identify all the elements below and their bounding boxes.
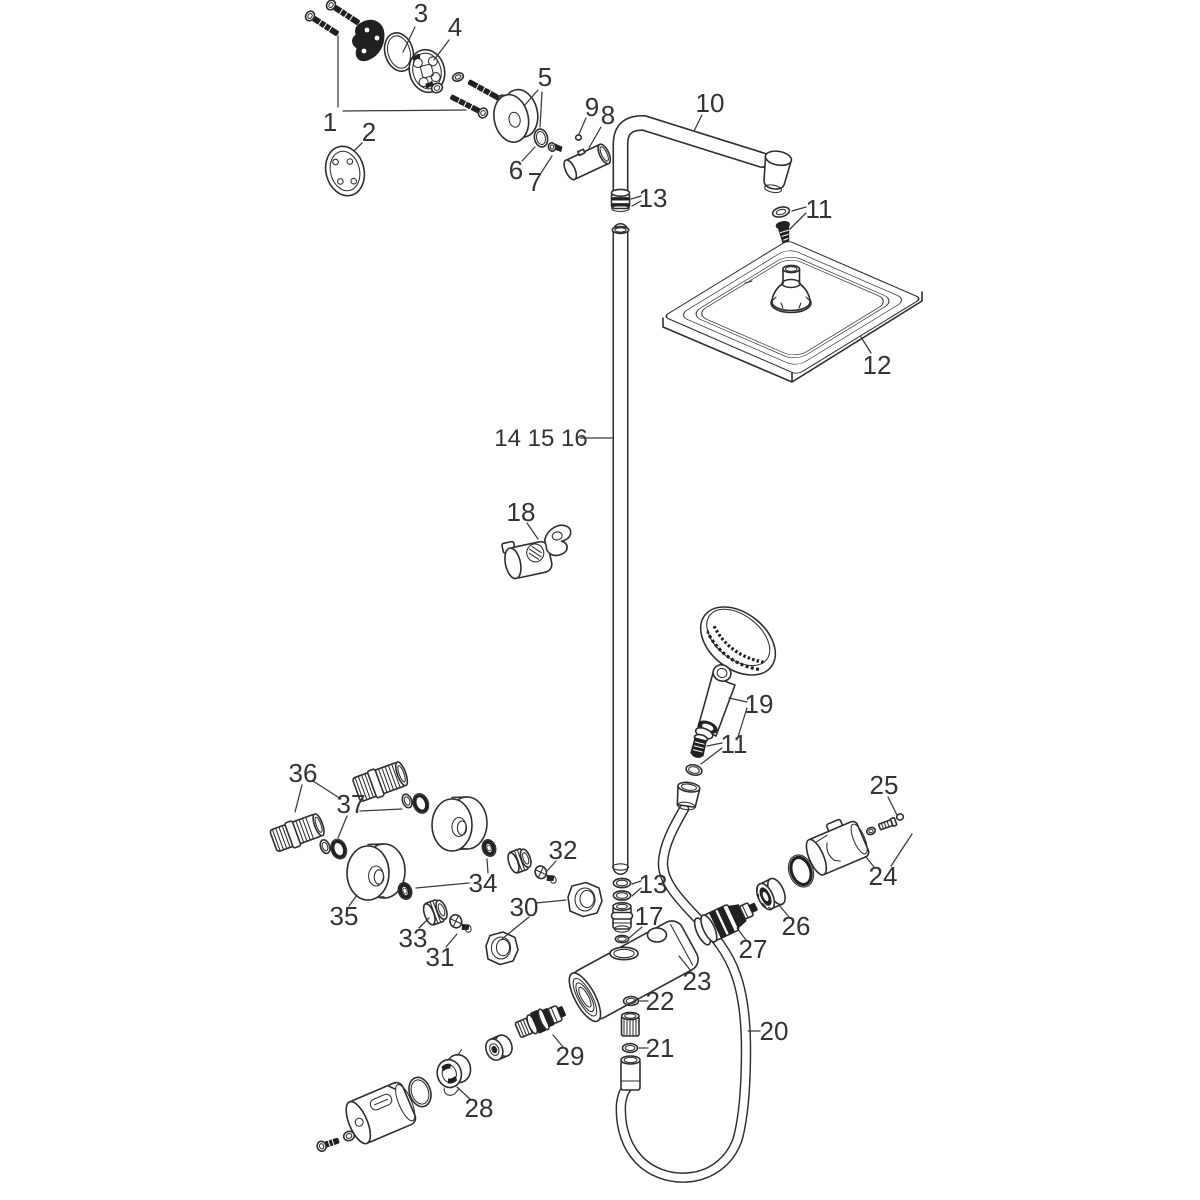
screw-7 xyxy=(547,142,562,152)
check-valve-31 xyxy=(448,911,472,937)
leader-line-30-0 xyxy=(536,900,566,903)
part-label-30: 30 xyxy=(510,892,539,922)
part-label-12: 12 xyxy=(863,350,892,380)
seal-set-37-lower xyxy=(318,833,349,864)
part-label-26: 26 xyxy=(782,911,811,941)
union-nut-30-upper xyxy=(568,883,602,917)
part-label-29: 29 xyxy=(556,1041,585,1071)
set-screw-9 xyxy=(576,135,582,140)
o-ring-6 xyxy=(533,128,549,148)
washer-34-lower xyxy=(396,881,414,901)
part-label-27: 27 xyxy=(739,934,768,964)
part-label-1: 1 xyxy=(323,107,337,137)
o-ring-21 xyxy=(623,1044,638,1053)
part-label-2: 2 xyxy=(362,117,376,147)
leader-line-6-0 xyxy=(522,147,535,161)
escutcheon-35 xyxy=(347,844,405,900)
leader-line-36-0 xyxy=(295,785,302,812)
part-label-8: 8 xyxy=(601,100,615,130)
part-label-37: 37 xyxy=(337,789,366,819)
adapter-32 xyxy=(506,846,534,874)
part-label-19: 19 xyxy=(745,689,774,719)
leader-line-34-1 xyxy=(416,883,469,888)
threaded-nipple xyxy=(622,1012,640,1036)
wall-sleeve-8 xyxy=(560,140,612,181)
cartridge-nut-26 xyxy=(753,876,789,912)
part-label-9: 9 xyxy=(585,92,599,122)
eccentric-connector-36-lower xyxy=(269,811,327,854)
leader-line-7-0 xyxy=(541,156,552,173)
leader-line-1-1 xyxy=(343,110,466,111)
part-label-33: 33 xyxy=(399,923,428,953)
seal-set-37-upper xyxy=(400,788,431,819)
part-label-20: 20 xyxy=(760,1016,789,1046)
exploded-parts-diagram: 3412567891011121314 15 16181911202524262… xyxy=(0,0,1200,1200)
washer-34-upper xyxy=(480,838,498,858)
part-label-21: 21 xyxy=(646,1033,675,1063)
part-labels: 3412567891011121314 15 16181911202524262… xyxy=(289,0,912,1123)
part-label-5: 5 xyxy=(538,62,552,92)
filter-11 xyxy=(690,733,708,759)
spindle-nut xyxy=(483,1032,516,1062)
slider-holder-18 xyxy=(500,523,578,580)
connector-17 xyxy=(612,903,633,933)
wall-seal-plate xyxy=(352,20,384,61)
part-label-35: 35 xyxy=(330,901,359,931)
part-label-31: 31 xyxy=(426,942,455,972)
escutcheon-34 xyxy=(432,797,487,851)
leader-line-37-0 xyxy=(338,816,347,838)
part-label-18: 18 xyxy=(507,497,536,527)
part-label-10: 10 xyxy=(696,88,725,118)
handle-screw-25 xyxy=(866,813,905,836)
handle-screw-bottom xyxy=(316,1130,356,1152)
o-rings-13-bottom xyxy=(613,878,630,900)
riser-pipe xyxy=(612,227,628,871)
part-label-24: 24 xyxy=(869,861,898,891)
part-label-7: 7 xyxy=(528,167,542,197)
o-ring-17 xyxy=(615,935,628,942)
leader-line-11-top-0 xyxy=(792,207,806,211)
leader-line-37-1 xyxy=(360,809,402,811)
pipe-nut-13-top xyxy=(612,189,630,211)
hand-shower-19 xyxy=(688,593,789,742)
valve-spindle-29 xyxy=(514,1001,569,1041)
leader-line-4-0 xyxy=(434,40,449,60)
o-ring-11 xyxy=(685,763,703,777)
part-label-23: 23 xyxy=(683,966,712,996)
part-label-11-mid: 11 xyxy=(721,729,748,759)
part-label-14-15-16: 14 15 16 xyxy=(494,425,587,452)
hose-end-fitting xyxy=(621,1056,640,1090)
bracket-nut xyxy=(451,71,464,82)
part-label-34: 34 xyxy=(469,868,498,898)
part-label-4: 4 xyxy=(448,12,462,42)
seal-and-screw-11-top xyxy=(772,205,793,244)
part-label-32: 32 xyxy=(549,835,578,865)
valve-body-23 xyxy=(563,917,702,1026)
check-valve-32 xyxy=(533,862,557,888)
shut-off-unit-28 xyxy=(433,1048,475,1097)
part-label-36: 36 xyxy=(289,758,318,788)
part-label-13-bottom: 13 xyxy=(639,869,668,899)
union-nut-30-lower xyxy=(486,932,518,965)
part-label-28: 28 xyxy=(465,1093,494,1123)
part-label-6: 6 xyxy=(509,155,523,185)
hose-nut xyxy=(675,781,701,811)
part-label-13-top: 13 xyxy=(639,183,668,213)
part-label-3: 3 xyxy=(414,0,428,28)
part-label-22: 22 xyxy=(646,986,675,1016)
part-label-25: 25 xyxy=(870,770,899,800)
leader-line-11-top-1 xyxy=(790,213,806,229)
leader-line-5-1 xyxy=(540,92,542,127)
wall-screws xyxy=(304,0,362,38)
part-label-17: 17 xyxy=(635,901,664,931)
cover-plate-2 xyxy=(321,142,370,200)
part-label-11-top: 11 xyxy=(806,194,833,224)
